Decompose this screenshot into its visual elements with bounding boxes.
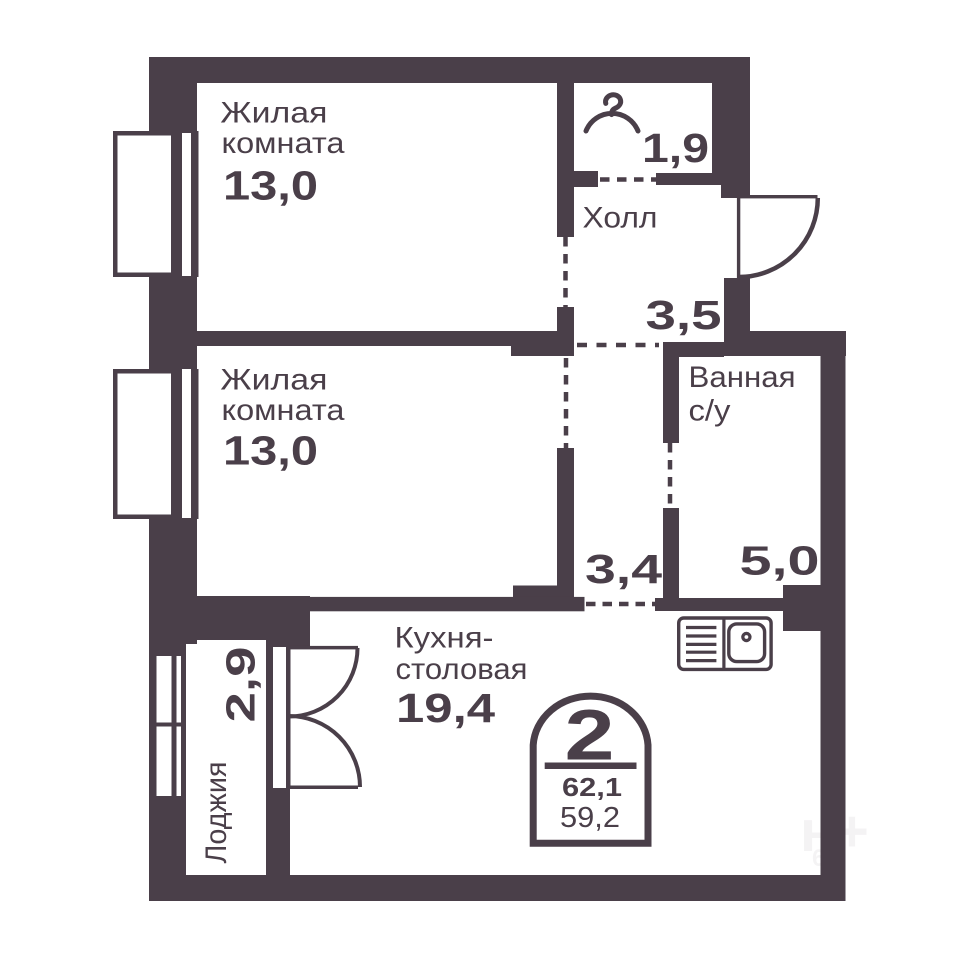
- svg-text:19,4: 19,4: [396, 685, 495, 731]
- svg-text:комната: комната: [222, 127, 346, 160]
- svg-text:комната: комната: [222, 394, 346, 427]
- svg-text:Лоджия: Лоджия: [200, 762, 233, 864]
- svg-text:Ванная: Ванная: [689, 361, 796, 394]
- svg-text:Жилая: Жилая: [220, 363, 327, 396]
- svg-text:59,2: 59,2: [560, 802, 620, 834]
- svg-text:61: 61: [812, 845, 839, 872]
- svg-text:13,0: 13,0: [223, 428, 318, 474]
- svg-text:5,0: 5,0: [740, 538, 820, 584]
- svg-text:13,0: 13,0: [223, 163, 318, 209]
- svg-text:Холл: Холл: [583, 202, 658, 235]
- svg-text:3,4: 3,4: [585, 546, 662, 592]
- svg-text:1,9: 1,9: [642, 125, 709, 171]
- svg-text:с/у: с/у: [689, 395, 731, 428]
- svg-text:2,9: 2,9: [218, 647, 264, 723]
- svg-text:3,5: 3,5: [646, 292, 722, 338]
- svg-text:Жилая: Жилая: [220, 96, 327, 129]
- svg-text:столовая: столовая: [396, 653, 528, 686]
- svg-text:2: 2: [565, 697, 615, 776]
- svg-text:Кухня-: Кухня-: [395, 622, 494, 655]
- svg-text:62,1: 62,1: [562, 772, 622, 802]
